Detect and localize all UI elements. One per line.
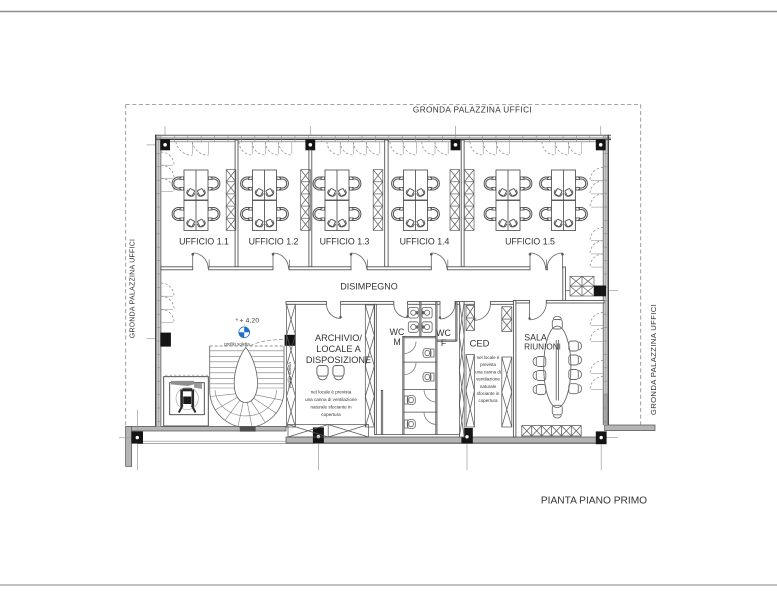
svg-text:DISPOSIZIONE: DISPOSIZIONE [306, 355, 371, 365]
svg-text:profilo soletta: profilo soletta [287, 362, 292, 388]
svg-text:nel locale è prevista: nel locale è prevista [311, 390, 352, 395]
svg-text:DISIMPEGNO: DISIMPEGNO [340, 282, 398, 292]
svg-text:UFFICIO 1.3: UFFICIO 1.3 [320, 236, 370, 246]
svg-text:copertura: copertura [478, 398, 498, 403]
svg-text:UFFICIO 1.5: UFFICIO 1.5 [505, 236, 555, 246]
svg-text:UFFICIO 1.4: UFFICIO 1.4 [400, 236, 450, 246]
svg-text:CED: CED [470, 337, 490, 348]
svg-text:GRONDA PALAZZINA UFFICI: GRONDA PALAZZINA UFFICI [413, 106, 532, 115]
svg-text:naturale: naturale [480, 384, 497, 389]
svg-text:ARCHIVIO/: ARCHIVIO/ [315, 333, 362, 343]
svg-text:RIUNIONI: RIUNIONI [524, 343, 561, 352]
svg-text:GRONDA PALAZZINA UFFICI: GRONDA PALAZZINA UFFICI [649, 304, 658, 415]
svg-text:LOCALE A: LOCALE A [316, 344, 361, 354]
svg-text:naturale sfociante in: naturale sfociante in [310, 405, 352, 410]
svg-text:prevista: prevista [480, 362, 496, 367]
svg-text:nel locale è: nel locale è [477, 355, 500, 360]
svg-text:PIANTA PIANO PRIMO: PIANTA PIANO PRIMO [541, 496, 647, 507]
svg-text:copertura: copertura [321, 412, 341, 417]
svg-text:UFFICIO 1.2: UFFICIO 1.2 [249, 236, 299, 246]
svg-text:una canna di ventilazione: una canna di ventilazione [305, 397, 357, 402]
svg-text:ventilazione: ventilazione [476, 377, 500, 382]
svg-text:F: F [441, 338, 447, 348]
svg-text:+ 4,20: + 4,20 [240, 317, 260, 324]
svg-text:GRONDA PALAZZINA UFFICI: GRONDA PALAZZINA UFFICI [129, 239, 136, 338]
svg-text:una canna di: una canna di [475, 369, 501, 374]
svg-text:WC: WC [390, 327, 405, 337]
svg-text:profilo soletta: profilo soletta [224, 341, 250, 346]
svg-text:sfociante in: sfociante in [477, 391, 500, 396]
svg-text:UFFICIO 1.1: UFFICIO 1.1 [179, 236, 229, 246]
svg-text:SALA: SALA [524, 332, 547, 342]
svg-text:WC: WC [436, 328, 451, 338]
svg-text:M: M [393, 337, 400, 347]
